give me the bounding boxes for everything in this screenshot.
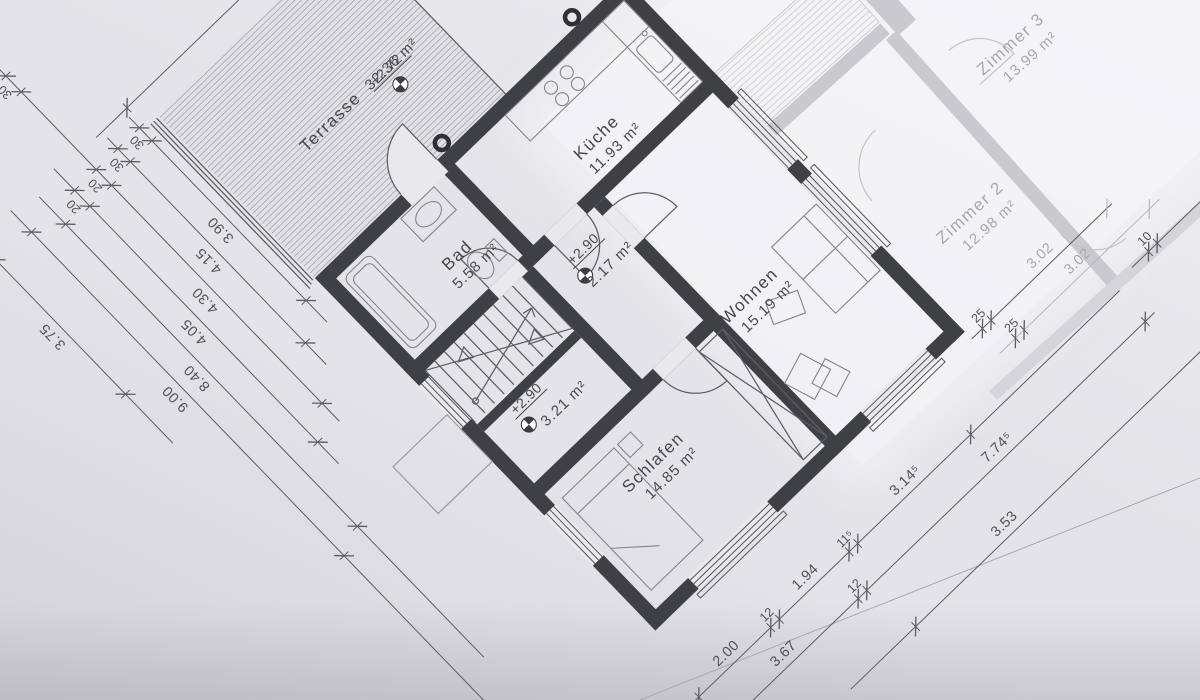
- vorraum-area: 3.21 m²: [538, 377, 591, 429]
- floorplan-photo: Zimmer 2 12.98 m² Zimmer 3 13.99 m² Terr…: [0, 0, 1200, 700]
- svg-text:3.53: 3.53: [988, 508, 1021, 541]
- svg-text:3.02: 3.02: [1024, 240, 1057, 273]
- svg-text:9.00: 9.00: [159, 382, 192, 415]
- svg-text:3.75: 3.75: [37, 320, 70, 353]
- svg-text:2.00: 2.00: [710, 637, 743, 670]
- svg-text:3.14⁵: 3.14⁵: [887, 462, 925, 499]
- svg-text:25: 25: [969, 306, 989, 326]
- svg-text:20: 20: [85, 176, 105, 196]
- svg-text:4.30: 4.30: [189, 284, 222, 317]
- svg-text:7.74⁵: 7.74⁵: [979, 429, 1017, 466]
- svg-text:1.94: 1.94: [789, 561, 822, 594]
- dimension-chains-south: 25 3.02 25 3.02 2.00 12 1.94 11⁵ 3.14⁵ 3…: [620, 137, 1200, 700]
- svg-text:3.67: 3.67: [767, 638, 800, 671]
- neighbour-door-arc-3: [838, 130, 909, 201]
- svg-text:3.90: 3.90: [205, 213, 238, 246]
- svg-text:4.15: 4.15: [193, 244, 226, 277]
- svg-text:8.40: 8.40: [181, 361, 214, 394]
- svg-text:12: 12: [844, 576, 864, 596]
- svg-text:30: 30: [107, 155, 127, 175]
- svg-text:30: 30: [0, 82, 15, 102]
- main-plan: Terrasse 32.36 m² +2.72: [0, 0, 1200, 700]
- svg-text:4.05: 4.05: [178, 315, 211, 348]
- svg-text:20: 20: [64, 197, 84, 217]
- svg-text:11⁵: 11⁵: [834, 528, 857, 551]
- svg-text:25: 25: [1002, 316, 1022, 336]
- floorplan-drawing: Zimmer 2 12.98 m² Zimmer 3 13.99 m² Terr…: [0, 0, 1200, 700]
- wardrobe-cross: [699, 329, 827, 460]
- svg-text:12: 12: [757, 605, 777, 625]
- svg-text:30: 30: [127, 133, 147, 153]
